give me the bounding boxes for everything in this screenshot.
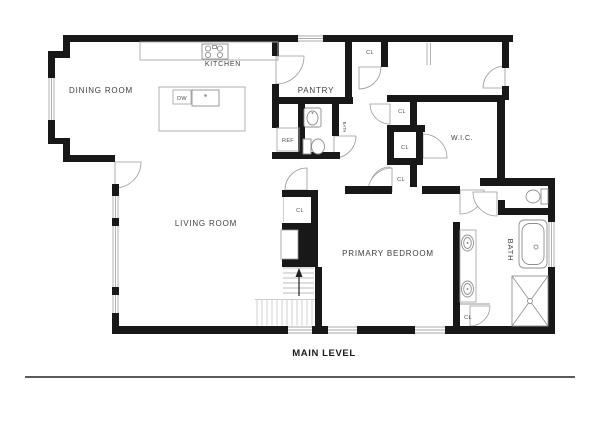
floor-plan: DINING ROOM KITCHEN PANTRY LIVING ROOM P… xyxy=(0,0,600,423)
dishwasher-label: DW xyxy=(177,96,187,102)
bathtub-icon xyxy=(519,220,547,268)
closet-c-label: CL xyxy=(397,177,405,183)
refrigerator-label: REF xyxy=(282,138,294,144)
closet-b-label: CL xyxy=(401,145,409,151)
stove-icon xyxy=(202,44,228,59)
toilet-icon xyxy=(526,189,548,204)
stairs xyxy=(255,268,315,326)
coat-closet-label: CL xyxy=(296,208,304,214)
vanity-double-sink xyxy=(460,230,476,302)
bath-closet-label: CL xyxy=(464,315,472,321)
kitchen-label: KITCHEN xyxy=(205,61,241,68)
plan-title: MAIN LEVEL xyxy=(292,348,356,359)
firebox xyxy=(281,230,298,259)
powder-bath-label: BATH xyxy=(342,122,347,133)
wic-label: W.I.C. xyxy=(451,135,473,142)
entry-door-arc xyxy=(483,66,505,88)
powder-sink-icon xyxy=(304,108,321,127)
closet-a-door-arc xyxy=(370,104,390,124)
closet-a-label: CL xyxy=(398,109,406,115)
divider-line xyxy=(25,376,575,378)
pantry-door-arc xyxy=(276,56,304,84)
entry-closet-label: CL xyxy=(366,50,374,56)
bath-door-arc-right xyxy=(473,192,497,216)
entry-closet-door-arc xyxy=(359,67,381,89)
pantry-label: PANTRY xyxy=(298,86,335,95)
stairs-up-arrow xyxy=(296,268,303,296)
fireplace xyxy=(281,223,318,267)
coat-closet-door-arc xyxy=(285,168,307,190)
kitchen-fixtures xyxy=(140,42,278,131)
dining-room-label: DINING ROOM xyxy=(69,86,133,95)
shower-icon xyxy=(512,276,548,326)
wic-door-arc xyxy=(423,134,447,158)
floor-plan-page: DINING ROOM KITCHEN PANTRY LIVING ROOM P… xyxy=(0,0,600,423)
primary-bedroom-label: PRIMARY BEDROOM xyxy=(342,249,434,258)
powder-toilet-icon xyxy=(303,139,325,154)
kitchen-sink-icon xyxy=(192,90,219,106)
bath-closet-door-arc xyxy=(470,306,490,326)
living-room-label: LIVING ROOM xyxy=(175,219,237,228)
bath-label: BATH xyxy=(506,239,515,262)
